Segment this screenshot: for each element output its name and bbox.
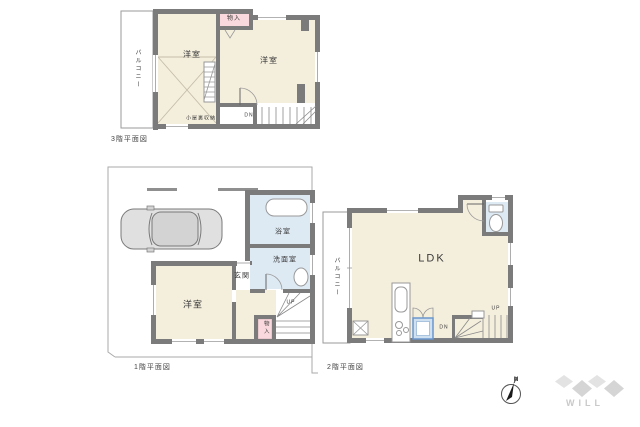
bathroom-label: 浴室	[275, 229, 291, 236]
floor1-caption: 1階平面図	[134, 362, 171, 372]
floor2-plan	[323, 195, 513, 343]
will-logo-icon	[555, 375, 624, 397]
floor3-closet-label: 物入	[227, 16, 241, 22]
bedroom-label: 洋室	[183, 301, 203, 310]
compass-north-label: N	[514, 377, 518, 383]
attic-ladder-icon	[204, 62, 215, 102]
kitchen-sink-icon	[395, 287, 407, 312]
floor3-dn-label: DN	[244, 114, 253, 119]
toilet-icon	[489, 205, 503, 232]
car-icon	[121, 206, 222, 252]
floor-plan-canvas: バルコニー 洋室 洋室 物入 小屋裏収納 DN 3階平面図 浴室 洗面室 玄関 …	[0, 0, 640, 427]
floor2-up-label: UP	[492, 307, 501, 312]
floor2-balcony-label: バルコニー	[333, 257, 339, 297]
washer-space	[353, 321, 368, 335]
parking-marker	[147, 188, 177, 191]
floor3-caption: 3階平面図	[111, 134, 148, 144]
kitchen-counter	[392, 283, 410, 342]
floor2-caption: 2階平面図	[327, 362, 364, 372]
floor3-balcony-label: バルコニー	[134, 49, 140, 89]
floor3-attic-label: 小屋裏収納	[186, 117, 216, 122]
floor3-plan	[121, 9, 320, 130]
floor3-room-right-label: 洋室	[260, 57, 278, 65]
floor2-dn-label: DN	[439, 326, 448, 331]
will-logo-text: WILL	[562, 398, 608, 408]
entrance-label: 玄関	[234, 273, 250, 280]
floor3-room-left-label: 洋室	[183, 51, 201, 59]
plan-linework	[0, 0, 640, 427]
floor1-closet-label: 物入	[262, 321, 268, 336]
ldk-label: LDK	[418, 254, 445, 265]
floor1-up-label: UP	[287, 301, 296, 306]
washroom-label: 洗面室	[273, 257, 297, 264]
floor1-plan	[108, 167, 318, 373]
sink-icon	[294, 268, 308, 286]
bathtub-icon	[266, 199, 307, 216]
